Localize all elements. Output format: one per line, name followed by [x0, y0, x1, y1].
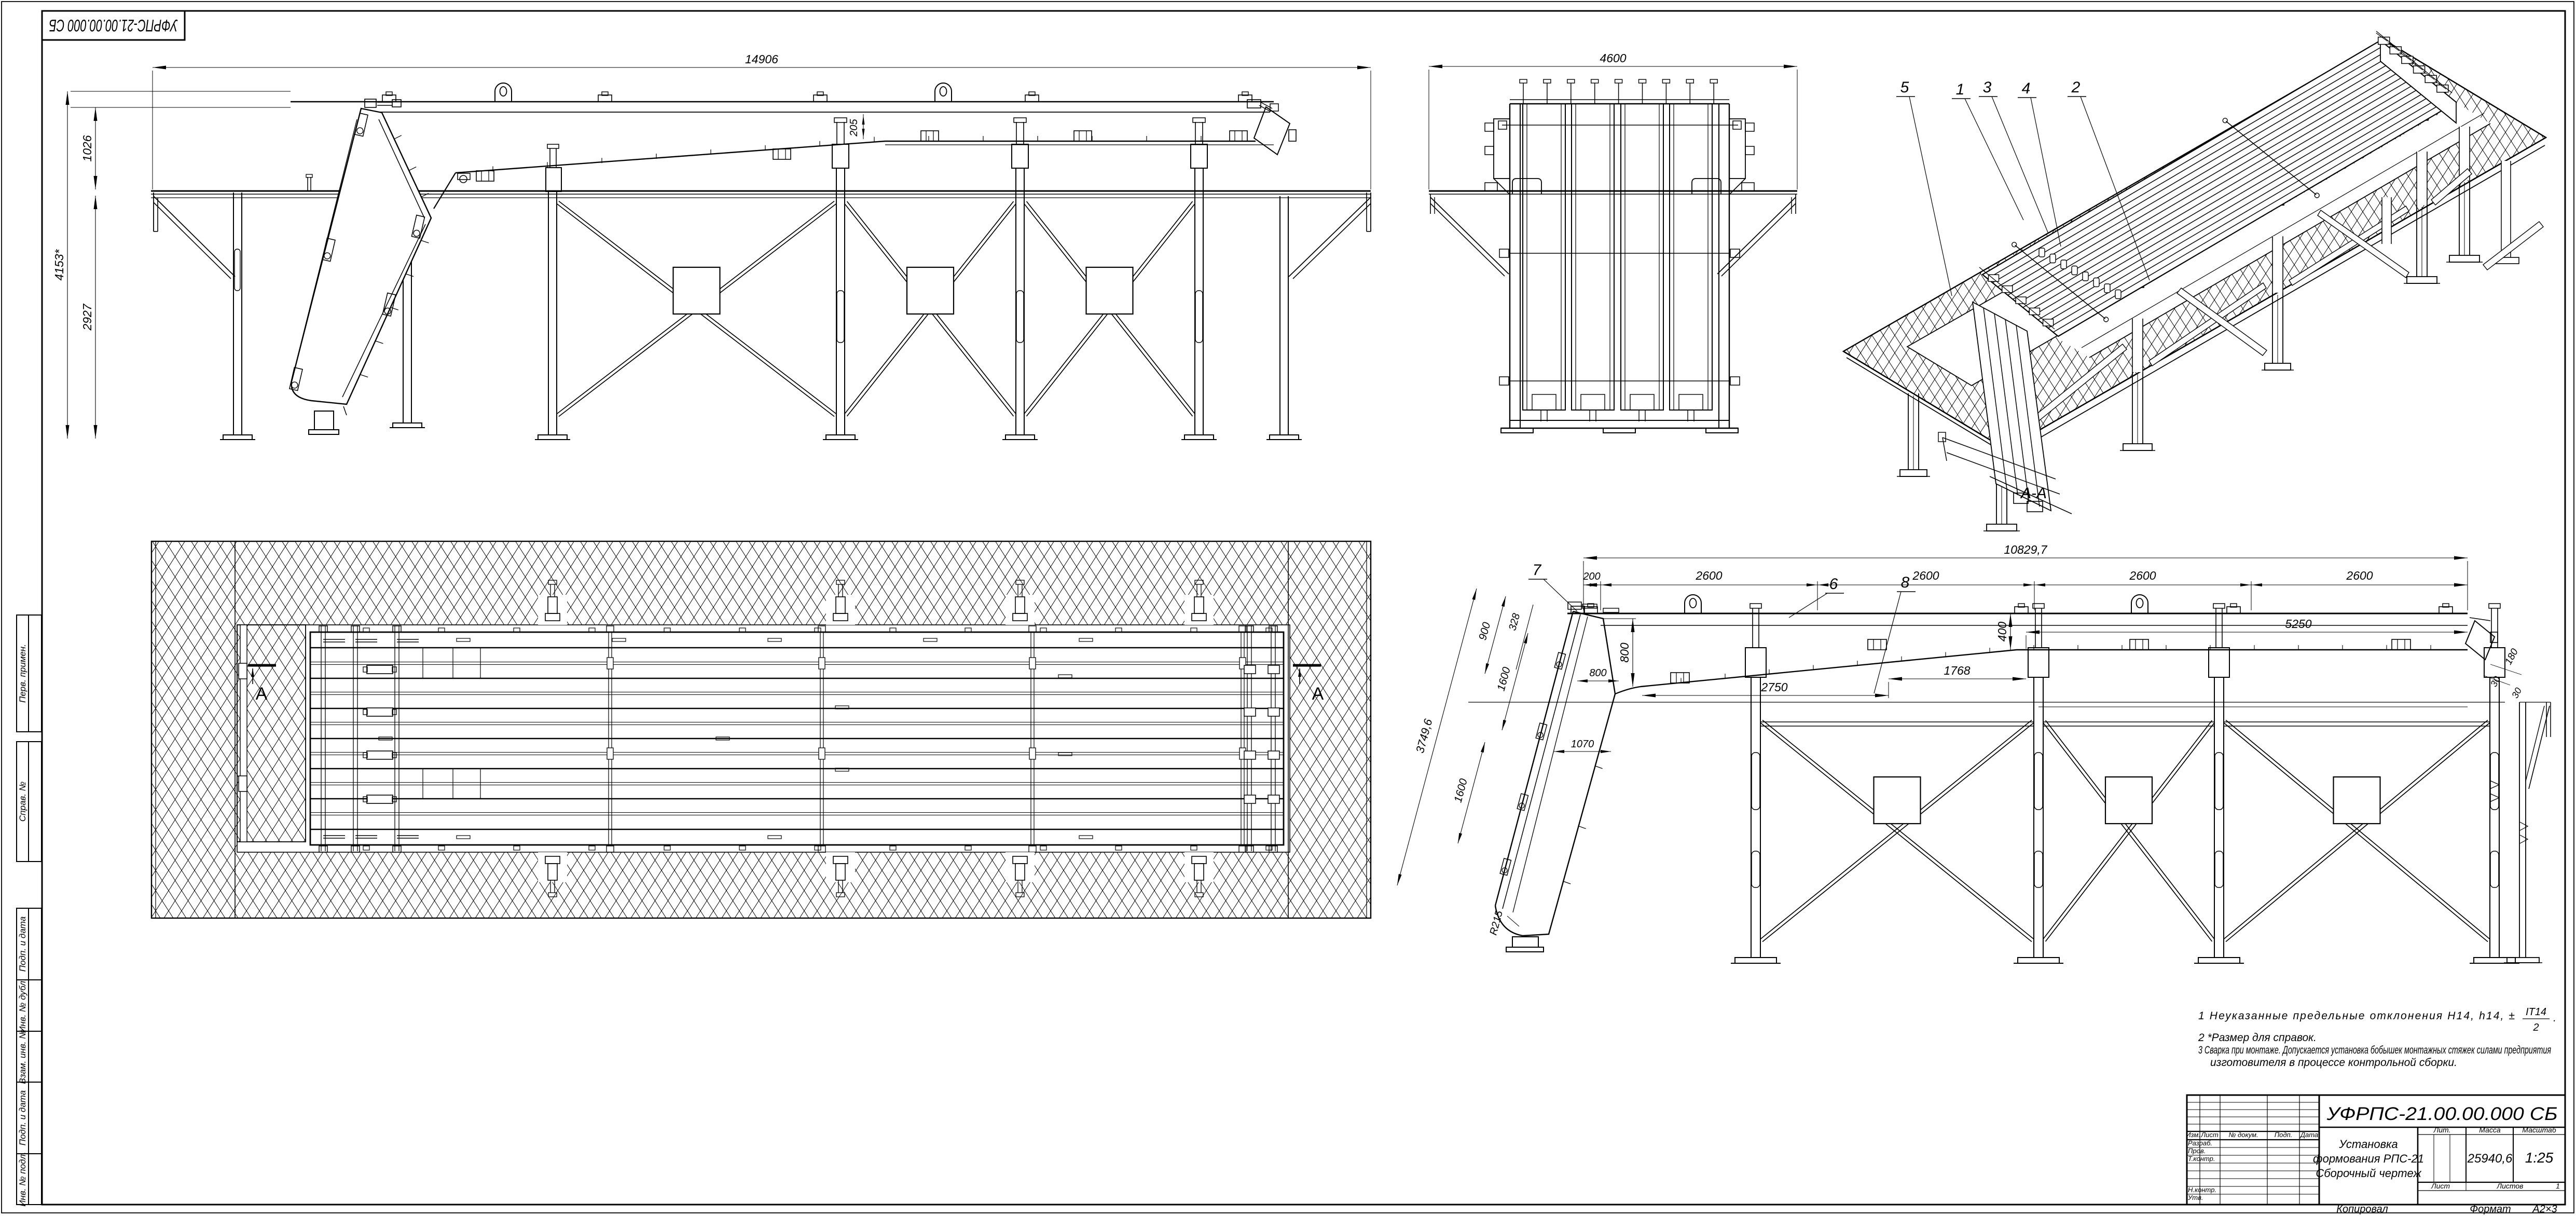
svg-text:800: 800: [1618, 643, 1631, 663]
svg-text:1070: 1070: [1571, 739, 1594, 750]
svg-text:Н.контр.: Н.контр.: [2188, 1186, 2216, 1194]
svg-text:2750: 2750: [1760, 680, 1787, 694]
svg-text:7: 7: [1533, 562, 1542, 579]
svg-text:Лист: Лист: [2200, 1131, 2219, 1139]
svg-text:А: А: [1312, 684, 1324, 704]
svg-text:Пров.: Пров.: [2188, 1147, 2206, 1155]
svg-text:4: 4: [2022, 80, 2031, 97]
svg-text:400: 400: [1995, 622, 2009, 642]
svg-text:Лит.: Лит.: [2433, 1126, 2451, 1134]
svg-text:2: 2: [2071, 79, 2081, 96]
svg-text:800: 800: [1589, 667, 1606, 679]
svg-text:4600: 4600: [1600, 51, 1626, 65]
svg-text:5250: 5250: [2285, 617, 2311, 631]
svg-text:Подп.: Подп.: [2275, 1131, 2293, 1139]
svg-text:.: .: [2553, 1012, 2556, 1024]
svg-text:8: 8: [1901, 574, 1910, 591]
svg-text:Масштаб: Масштаб: [2522, 1126, 2557, 1134]
svg-text:Листов: Листов: [2497, 1182, 2524, 1190]
svg-text:Изм.: Изм.: [2186, 1131, 2200, 1139]
svg-text:2600: 2600: [1912, 569, 1939, 582]
svg-text:3 Сварка при монтаже. Допуска: 3 Сварка при монтаже. Допускается устано…: [2198, 1044, 2551, 1056]
svg-text:2 *Размер для справок.: 2 *Размер для справок.: [2198, 1032, 2317, 1044]
svg-text:1768: 1768: [1944, 664, 1970, 677]
svg-text:Установка: Установка: [2338, 1138, 2398, 1151]
svg-text:Дата: Дата: [2299, 1131, 2318, 1139]
svg-text:Подп. и дата: Подп. и дата: [18, 917, 27, 972]
svg-text:1: 1: [2556, 1182, 2560, 1190]
svg-text:Взам. инв. №: Взам. инв. №: [18, 1029, 27, 1084]
svg-text:14906: 14906: [745, 52, 778, 66]
svg-text:Масса: Масса: [2479, 1126, 2501, 1134]
svg-text:1: 1: [1956, 81, 1965, 98]
svg-text:1026: 1026: [80, 135, 94, 161]
svg-text:1:25: 1:25: [2525, 1150, 2554, 1166]
svg-text:№ докум.: № докум.: [2228, 1131, 2258, 1139]
svg-text:200: 200: [1582, 571, 1600, 582]
svg-text:5: 5: [1900, 79, 1909, 96]
svg-text:УФРПС-21.00.00.000 СБ: УФРПС-21.00.00.000 СБ: [49, 16, 178, 35]
svg-text:6: 6: [1829, 576, 1838, 593]
svg-text:2600: 2600: [2129, 569, 2156, 582]
svg-text:2927: 2927: [80, 303, 94, 331]
svg-text:1 Неуказанные предельные откл: 1 Неуказанные предельные отклонения Н14,…: [2198, 1010, 2515, 1022]
svg-text:2600: 2600: [2346, 569, 2373, 582]
svg-text:Подп. и дата: Подп. и дата: [18, 1090, 27, 1145]
svg-text:10829,7: 10829,7: [2004, 543, 2047, 556]
svg-text:Лист: Лист: [2431, 1182, 2450, 1190]
svg-text:2: 2: [2532, 1022, 2539, 1033]
svg-text:А-А: А-А: [2020, 485, 2047, 502]
svg-text:Инв. № дубл.: Инв. № дубл.: [18, 978, 27, 1033]
svg-text:Справ. №: Справ. №: [18, 782, 27, 822]
svg-text:Утв.: Утв.: [2187, 1194, 2203, 1201]
svg-text:формования РПС-21: формования РПС-21: [2313, 1152, 2424, 1165]
svg-text:25940,6: 25940,6: [2467, 1152, 2513, 1166]
svg-text:Разраб.: Разраб.: [2188, 1139, 2212, 1147]
svg-text:УФРПС-21.00.00.000 СБ: УФРПС-21.00.00.000 СБ: [2326, 1104, 2557, 1124]
svg-text:Т.контр.: Т.контр.: [2188, 1155, 2215, 1163]
svg-text:205: 205: [848, 118, 860, 136]
svg-text:3: 3: [1983, 79, 1992, 96]
svg-text:Перв. примен.: Перв. примен.: [18, 644, 27, 703]
svg-text:4153*: 4153*: [52, 249, 66, 280]
svg-text:изготовителя в процессе контро: изготовителя в процессе контрольной сбор…: [2210, 1057, 2457, 1069]
svg-text:А: А: [256, 684, 268, 704]
svg-text:Сборочный чертеж: Сборочный чертеж: [2316, 1167, 2421, 1180]
svg-text:2600: 2600: [1695, 569, 1722, 582]
svg-text:Инв. № подл.: Инв. № подл.: [18, 1152, 27, 1207]
svg-text:IT14: IT14: [2526, 1006, 2546, 1018]
